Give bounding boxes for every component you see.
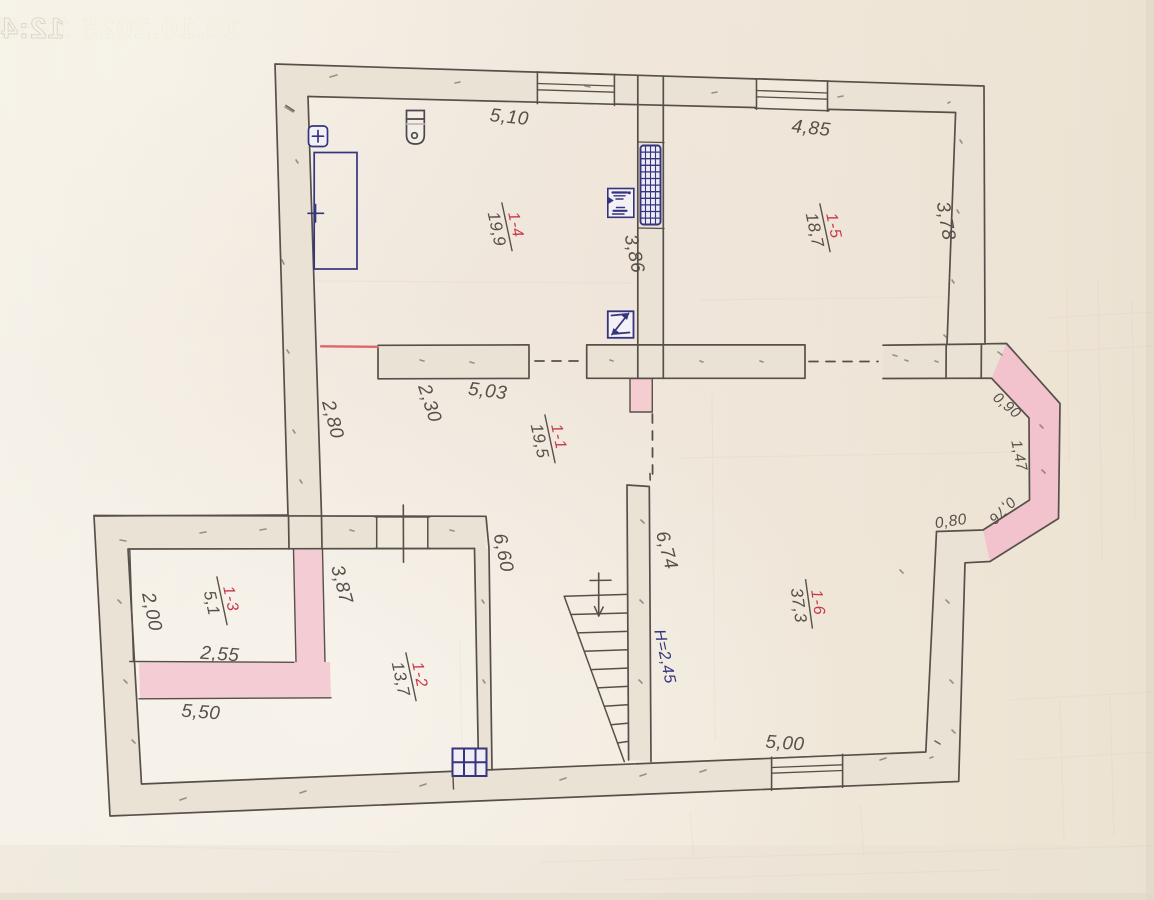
svg-text:5,50: 5,50 [181,701,221,725]
svg-text:5,10: 5,10 [489,105,530,130]
svg-text:2,55: 2,55 [199,643,240,667]
svg-text:4,85: 4,85 [791,116,832,141]
svg-text:5,00: 5,00 [765,732,805,756]
svg-text:12:4: 12:4 [0,13,64,45]
